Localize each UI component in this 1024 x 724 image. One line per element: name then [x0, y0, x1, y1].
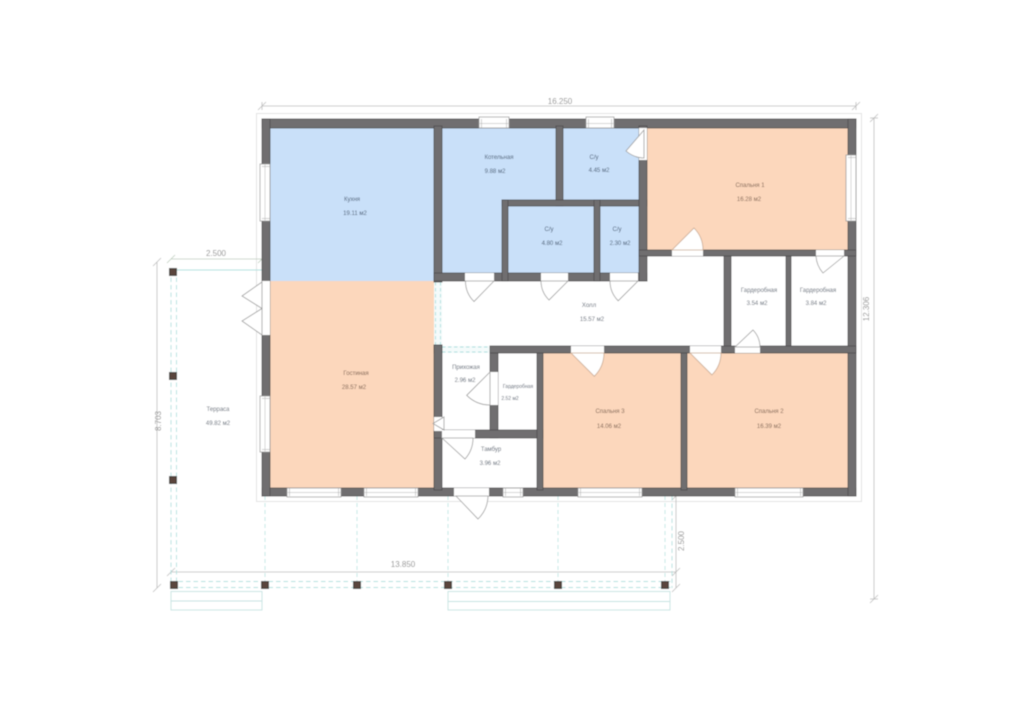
svg-text:16.28 м2: 16.28 м2 [737, 197, 762, 203]
svg-text:Котельная: Котельная [484, 155, 513, 161]
svg-text:3.54 м2: 3.54 м2 [747, 301, 768, 307]
svg-text:49.82 м2: 49.82 м2 [206, 421, 231, 427]
svg-text:14.06 м2: 14.06 м2 [597, 424, 622, 430]
svg-text:4.45 м2: 4.45 м2 [589, 168, 610, 174]
svg-text:Тамбур: Тамбур [481, 447, 502, 453]
svg-text:Холл: Холл [582, 303, 597, 309]
svg-text:Спальня 1: Спальня 1 [735, 183, 765, 189]
svg-text:4.80 м2: 4.80 м2 [542, 241, 563, 247]
svg-text:Терраса: Терраса [206, 407, 230, 413]
svg-text:2.500: 2.500 [206, 249, 227, 258]
svg-text:3.84 м2: 3.84 м2 [806, 301, 827, 307]
svg-text:2.96 м2: 2.96 м2 [455, 378, 476, 384]
svg-text:8.703: 8.703 [154, 410, 163, 431]
svg-text:2.52 м2: 2.52 м2 [501, 396, 519, 402]
svg-text:28.57 м2: 28.57 м2 [342, 385, 367, 391]
svg-text:13.850: 13.850 [391, 560, 416, 569]
svg-text:16.39 м2: 16.39 м2 [757, 424, 782, 430]
svg-text:12.306: 12.306 [862, 296, 871, 321]
svg-text:2.500: 2.500 [677, 530, 686, 551]
svg-text:3.96 м2: 3.96 м2 [480, 461, 501, 467]
svg-text:С/у: С/у [545, 227, 554, 233]
svg-text:9.88 м2: 9.88 м2 [485, 169, 506, 175]
svg-text:Гардеробная: Гардеробная [503, 384, 534, 390]
svg-text:Прихожая: Прихожая [452, 365, 480, 371]
svg-text:Кухня: Кухня [344, 197, 360, 203]
svg-text:Гардеробная: Гардеробная [800, 288, 836, 294]
svg-text:Гостиная: Гостиная [343, 371, 368, 377]
svg-text:Гардеробная: Гардеробная [741, 288, 777, 294]
svg-text:Спальня 2: Спальня 2 [754, 409, 784, 415]
svg-text:2.30 м2: 2.30 м2 [610, 241, 631, 247]
svg-text:Спальня 3: Спальня 3 [595, 409, 625, 415]
svg-text:19.11 м2: 19.11 м2 [343, 211, 367, 217]
svg-text:16.250: 16.250 [548, 97, 573, 106]
svg-text:С/у: С/у [613, 227, 622, 233]
svg-text:С/у: С/у [590, 155, 599, 161]
svg-text:15.57 м2: 15.57 м2 [580, 317, 605, 323]
